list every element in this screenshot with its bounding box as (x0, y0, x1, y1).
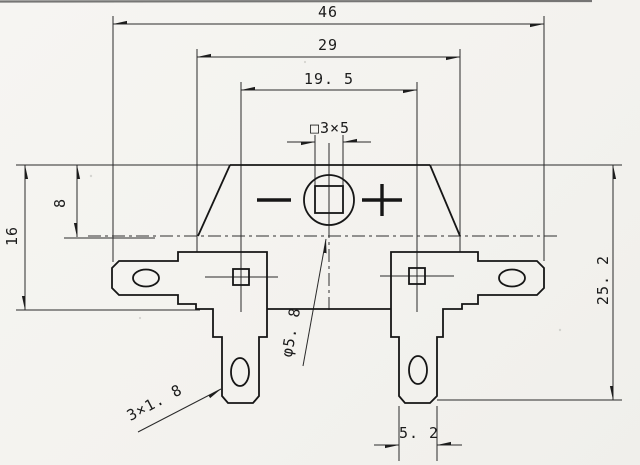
dimension-labels: 46 29 19. 5 □3×5 16 8 25. 2 5. 2 φ5. 8 3… (3, 3, 612, 442)
right-tab-oval-slot (409, 356, 427, 384)
right-blade-oval-hole (499, 270, 525, 287)
paper-speck (559, 329, 561, 331)
paper-speck (304, 61, 306, 63)
scan-edge-artifact (0, 1, 592, 2)
dim-5-2-label: 5. 2 (399, 424, 439, 442)
dim-19-5-label: 19. 5 (304, 70, 354, 88)
paper-speck (139, 317, 141, 319)
scanned-drawing-page: 46 29 19. 5 □3×5 16 8 25. 2 5. 2 φ5. 8 3… (0, 0, 640, 465)
body-right-slant (430, 165, 460, 236)
centerlines (88, 225, 558, 312)
square-hole-label: □3×5 (310, 119, 350, 137)
dim-46-label: 46 (318, 3, 338, 21)
hole-dia-label: φ5. 8 (278, 306, 304, 359)
dim-29-label: 29 (318, 36, 338, 54)
part-outline (112, 165, 544, 403)
right-terminal-outline (391, 252, 544, 403)
left-blade-oval-hole (133, 270, 159, 287)
body-left-slant (198, 165, 230, 236)
technical-drawing: 46 29 19. 5 □3×5 16 8 25. 2 5. 2 φ5. 8 3… (0, 0, 640, 465)
paper-speck (90, 175, 92, 177)
dim-25-2-label: 25. 2 (594, 255, 612, 305)
dim-16-label: 16 (3, 226, 21, 246)
left-terminal-outline (112, 252, 267, 403)
hole-dia-leader (303, 239, 326, 366)
left-tab-oval-slot (231, 358, 249, 386)
slot-label: 3×1. 8 (124, 381, 186, 425)
dim-8-label: 8 (51, 198, 69, 208)
